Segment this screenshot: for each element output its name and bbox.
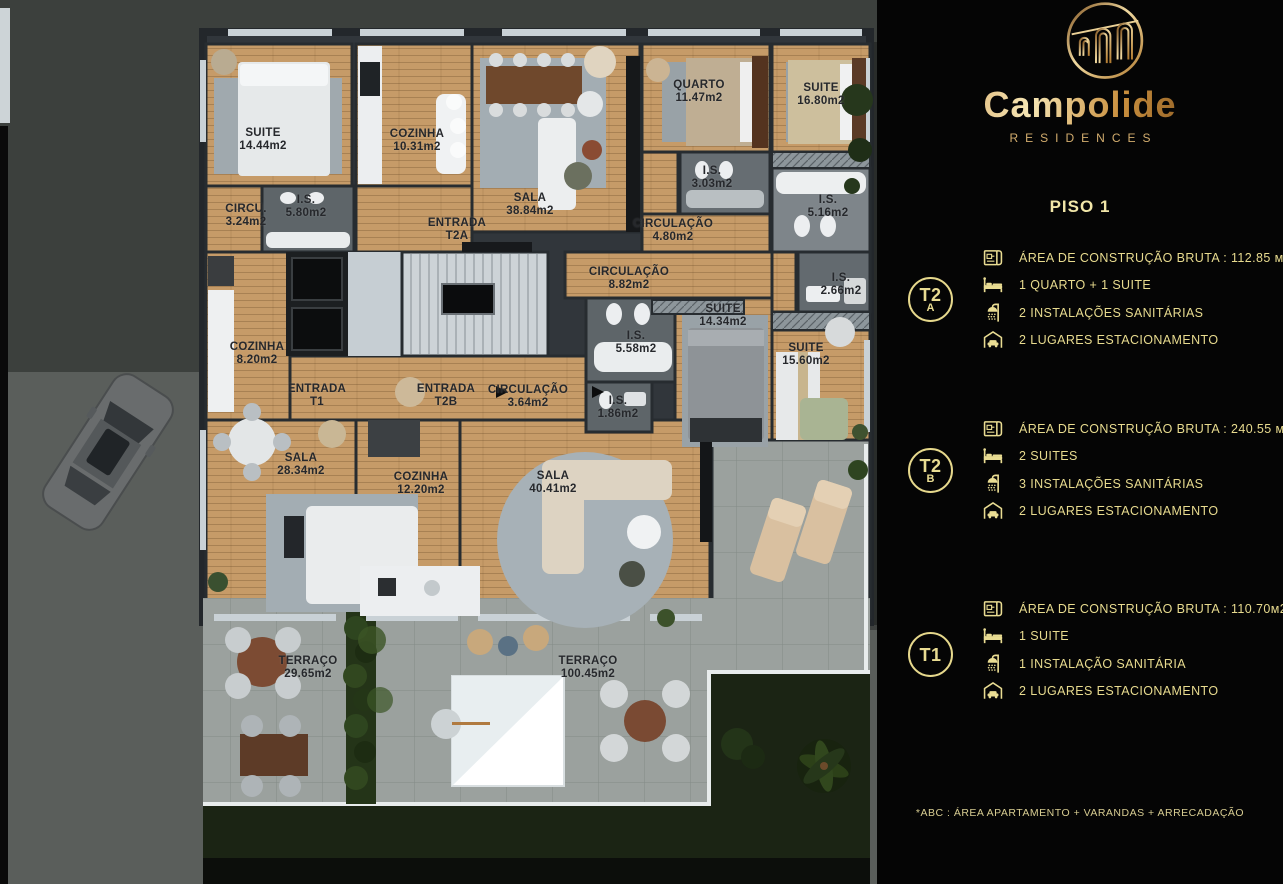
unit-badge-t2b: T2 B	[908, 448, 953, 493]
spec-text: 2 LUGARES ESTACIONAMENTO	[1019, 504, 1218, 518]
room-name: CIRCULAÇÃO	[633, 218, 713, 231]
room-label: I.S. 2.66m2	[821, 272, 862, 298]
room-name: TERRAÇO	[559, 655, 618, 668]
brand-name: Campolide	[877, 84, 1283, 126]
room-label: I.S. 5.58m2	[616, 330, 657, 356]
spec-text: 2 LUGARES ESTACIONAMENTO	[1019, 684, 1218, 698]
shower-icon	[981, 652, 1005, 676]
room-name: SALA	[506, 192, 554, 205]
footnote: *ABC : ÁREA APARTAMENTO + VARANDAS + ARR…	[877, 807, 1283, 819]
spec-text: 1 SUITE	[1019, 629, 1069, 643]
garage-icon	[981, 499, 1005, 523]
room-area: 1.86m2	[598, 408, 639, 421]
room-label: I.S. 5.16m2	[808, 194, 849, 220]
room-area: 16.80m2	[797, 95, 845, 108]
room-name: I.S.	[598, 395, 639, 408]
room-area: 100.45m2	[559, 668, 618, 681]
room-label: SALA 40.41m2	[529, 470, 577, 496]
room-name: CIRCULAÇÃO	[589, 266, 669, 279]
room-name: COZINHA	[390, 128, 445, 141]
blueprint-icon	[981, 417, 1005, 441]
room-name: TERRAÇO	[279, 655, 338, 668]
room-name: SUITE	[797, 82, 845, 95]
spec-text: 1 INSTALAÇÃO SANITÁRIA	[1019, 657, 1186, 671]
room-name: I.S.	[808, 194, 849, 207]
entrance-lobby	[348, 252, 402, 356]
room-name: SALA	[277, 452, 325, 465]
room-area: T1	[288, 396, 346, 409]
room-name: SALA	[529, 470, 577, 483]
room-area: 11.47m2	[673, 92, 724, 105]
room-area: 10.31m2	[390, 141, 445, 154]
blueprint-icon	[981, 597, 1005, 621]
room-label: ENTRADA T2A	[428, 217, 486, 243]
room-label: SUITE 15.60m2	[782, 342, 830, 368]
spec-row: 2 LUGARES ESTACIONAMENTO	[981, 678, 1275, 706]
spec-row: 1 SUITE	[981, 623, 1275, 651]
spec-text: ÁREA DE CONSTRUÇÃO BRUTA : 110.70м2*	[1019, 602, 1283, 616]
spec-row: 2 LUGARES ESTACIONAMENTO	[981, 327, 1275, 355]
room-name: ENTRADA	[428, 217, 486, 230]
unit-badge-t2a: T2 A	[908, 277, 953, 322]
badge-line2: B	[927, 474, 935, 485]
bed-icon	[981, 624, 1005, 648]
staircase	[402, 252, 548, 356]
room-label: CIRCU. 3.24m2	[225, 203, 266, 229]
room-label: CIRCULAÇÃO 8.82m2	[589, 266, 669, 292]
room-area: 5.80m2	[286, 207, 327, 220]
room-label: TERRAÇO 100.45m2	[559, 655, 618, 681]
bed-icon	[981, 273, 1005, 297]
spec-row: 2 SUITES	[981, 443, 1275, 471]
room-area: 15.60m2	[782, 355, 830, 368]
aqueduct-logo-icon	[1060, 1, 1150, 86]
room-label: SUITE 14.44m2	[239, 127, 287, 153]
room-name: COZINHA	[230, 341, 285, 354]
room-area: T2B	[417, 396, 475, 409]
blueprint-icon	[981, 246, 1005, 270]
room-area: T2A	[428, 230, 486, 243]
garage-icon	[981, 328, 1005, 352]
room-area: 14.44m2	[239, 140, 287, 153]
badge-line1: T2	[919, 457, 941, 475]
spec-row: 3 INSTALAÇÕES SANITÁRIAS	[981, 470, 1275, 498]
room-name: COZINHA	[394, 471, 449, 484]
spec-row: 2 LUGARES ESTACIONAMENTO	[981, 498, 1275, 526]
room-area: 29.65m2	[279, 668, 338, 681]
unit-badge-t1: T1	[908, 632, 953, 677]
floor-plan: SUITE 14.44m2 COZINHA 10.31m2 CIRCU. 3.2…	[0, 0, 877, 884]
room-area: 14.34m2	[699, 316, 747, 329]
spec-text: 2 LUGARES ESTACIONAMENTO	[1019, 333, 1218, 347]
spec-rows: ÁREA DE CONSTRUÇÃO BRUTA : 110.70м2* 1 S…	[981, 595, 1275, 705]
garage-icon	[981, 679, 1005, 703]
spec-text: ÁREA DE CONSTRUÇÃO BRUTA : 240.55 м2*	[1019, 422, 1283, 436]
room-name: I.S.	[692, 165, 733, 178]
elevators	[286, 252, 348, 356]
room-area: 8.82m2	[589, 279, 669, 292]
spec-rows: ÁREA DE CONSTRUÇÃO BRUTA : 240.55 м2* 2 …	[981, 415, 1275, 525]
spec-row: 1 INSTALAÇÃO SANITÁRIA	[981, 650, 1275, 678]
spec-text: 1 QUARTO + 1 SUITE	[1019, 278, 1151, 292]
brand-subtitle: RESIDENCES	[877, 131, 1283, 145]
bed-icon	[981, 444, 1005, 468]
floor-title: PISO 1	[877, 197, 1283, 217]
room-name: CIRCU.	[225, 203, 266, 216]
spec-text: 2 SUITES	[1019, 449, 1078, 463]
room-label: CIRCULAÇÃO 4.80m2	[633, 218, 713, 244]
room-name: ENTRADA	[417, 383, 475, 396]
brand-logo	[1060, 1, 1150, 85]
room-area: 2.66m2	[821, 285, 862, 298]
room-area: 12.20m2	[394, 484, 449, 497]
room-label: COZINHA 8.20m2	[230, 341, 285, 367]
room-label: SALA 38.84m2	[506, 192, 554, 218]
room-name: SUITE	[699, 303, 747, 316]
room-area: 3.64m2	[488, 397, 568, 410]
room-area: 40.41m2	[529, 483, 577, 496]
room-name: QUARTO	[673, 79, 724, 92]
badge-line1: T2	[919, 286, 941, 304]
room-label: I.S. 3.03m2	[692, 165, 733, 191]
room-label: SUITE 14.34m2	[699, 303, 747, 329]
room-label: I.S. 5.80m2	[286, 194, 327, 220]
spec-row: ÁREA DE CONSTRUÇÃO BRUTA : 112.85 м2*	[981, 244, 1275, 272]
room-area: 38.84m2	[506, 205, 554, 218]
room-name: I.S.	[821, 272, 862, 285]
room-area: 28.34m2	[277, 465, 325, 478]
room-area: 5.16m2	[808, 207, 849, 220]
room-area: 5.58m2	[616, 343, 657, 356]
spec-text: 3 INSTALAÇÕES SANITÁRIAS	[1019, 477, 1203, 491]
room-name: I.S.	[286, 194, 327, 207]
room-label: CIRCULAÇÃO 3.64m2	[488, 384, 568, 410]
room-label: I.S. 1.86m2	[598, 395, 639, 421]
spec-row: ÁREA DE CONSTRUÇÃO BRUTA : 240.55 м2*	[981, 415, 1275, 443]
badge-line2: A	[927, 303, 935, 314]
spec-row: ÁREA DE CONSTRUÇÃO BRUTA : 110.70м2*	[981, 595, 1275, 623]
spec-row: 1 QUARTO + 1 SUITE	[981, 272, 1275, 300]
room-label: SUITE 16.80m2	[797, 82, 845, 108]
room-name: CIRCULAÇÃO	[488, 384, 568, 397]
shower-icon	[981, 301, 1005, 325]
shower-icon	[981, 472, 1005, 496]
room-area: 3.24m2	[225, 216, 266, 229]
room-label: TERRAÇO 29.65m2	[279, 655, 338, 681]
room-label: SALA 28.34m2	[277, 452, 325, 478]
room-area: 4.80m2	[633, 231, 713, 244]
room-label: ENTRADA T1	[288, 383, 346, 409]
spec-text: 2 INSTALAÇÕES SANITÁRIAS	[1019, 306, 1203, 320]
spec-rows: ÁREA DE CONSTRUÇÃO BRUTA : 112.85 м2* 1 …	[981, 244, 1275, 354]
room-label: QUARTO 11.47m2	[673, 79, 724, 105]
room-area: 8.20m2	[230, 354, 285, 367]
spec-text: ÁREA DE CONSTRUÇÃO BRUTA : 112.85 м2*	[1019, 251, 1283, 265]
room-label: COZINHA 10.31m2	[390, 128, 445, 154]
spec-row: 2 INSTALAÇÕES SANITÁRIAS	[981, 299, 1275, 327]
room-name: SUITE	[239, 127, 287, 140]
info-panel: Campolide RESIDENCES PISO 1 T2 A ÁREA DE…	[877, 0, 1283, 884]
room-label: ENTRADA T2B	[417, 383, 475, 409]
room-name: ENTRADA	[288, 383, 346, 396]
room-name: I.S.	[616, 330, 657, 343]
room-name: SUITE	[782, 342, 830, 355]
room-area: 3.03m2	[692, 178, 733, 191]
badge-line1: T1	[919, 646, 941, 664]
room-label: COZINHA 12.20m2	[394, 471, 449, 497]
